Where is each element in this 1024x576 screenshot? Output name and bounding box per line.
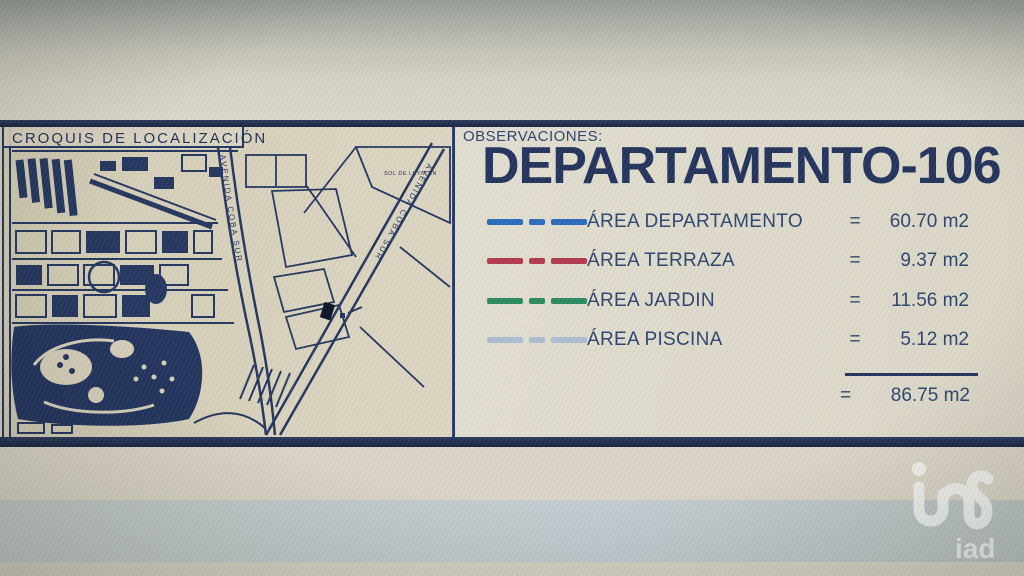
equals-sign: = — [840, 385, 851, 407]
area-value: 9.37 m2 — [870, 250, 969, 272]
avenue-vertical-label: AVENIDA COBA SUR — [218, 154, 244, 264]
screen-top-area — [0, 0, 1024, 120]
photo-of-plan-sheet: AVENIDA COBA SUR SOL DE LUYM SN AVENIDA — [0, 0, 1024, 576]
area-value: 60.70 m2 — [870, 211, 969, 233]
legend-label: ÁREA TERRAZA — [587, 250, 840, 272]
legend-label: ÁREA DEPARTAMENTO — [587, 211, 840, 233]
area-legend-table: ÁREA DEPARTAMENTO = 60.70 m2 ÁREA TERRAZ… — [487, 202, 969, 360]
equals-sign: = — [840, 329, 870, 351]
croquis-title: CROQUIS DE LOCALIZACIÓN — [4, 127, 244, 148]
croquis-panel: AVENIDA COBA SUR SOL DE LUYM SN AVENIDA — [2, 127, 455, 437]
legend-label: ÁREA PISCINA — [587, 329, 840, 351]
bottom-stripe — [0, 500, 1024, 562]
area-value: 5.12 m2 — [870, 329, 969, 351]
equals-sign: = — [840, 290, 870, 312]
equals-sign: = — [840, 250, 870, 272]
total-divider — [845, 373, 978, 376]
equals-sign: = — [840, 211, 870, 233]
sheet-top-border — [0, 120, 1024, 127]
legend-label: ÁREA JARDIN — [587, 290, 840, 312]
legend-swatch-terraza — [487, 258, 587, 264]
iad-wordmark: iad — [955, 533, 995, 564]
area-value: 11.56 m2 — [870, 290, 969, 312]
legend-swatch-piscina — [487, 337, 587, 343]
department-title: DEPARTAMENTO-106 — [482, 136, 1012, 196]
legend-swatch-departamento — [487, 219, 587, 225]
site-map: AVENIDA COBA SUR SOL DE LUYM SN AVENIDA — [4, 127, 457, 437]
total-area-value: 86.75 m2 — [891, 385, 970, 407]
total-row: = 86.75 m2 — [840, 385, 970, 407]
legend-swatch-jardin — [487, 298, 587, 304]
iad-monogram-icon — [912, 462, 988, 524]
sheet-bottom-border — [0, 437, 1024, 447]
iad-logo: iad — [900, 454, 1018, 576]
